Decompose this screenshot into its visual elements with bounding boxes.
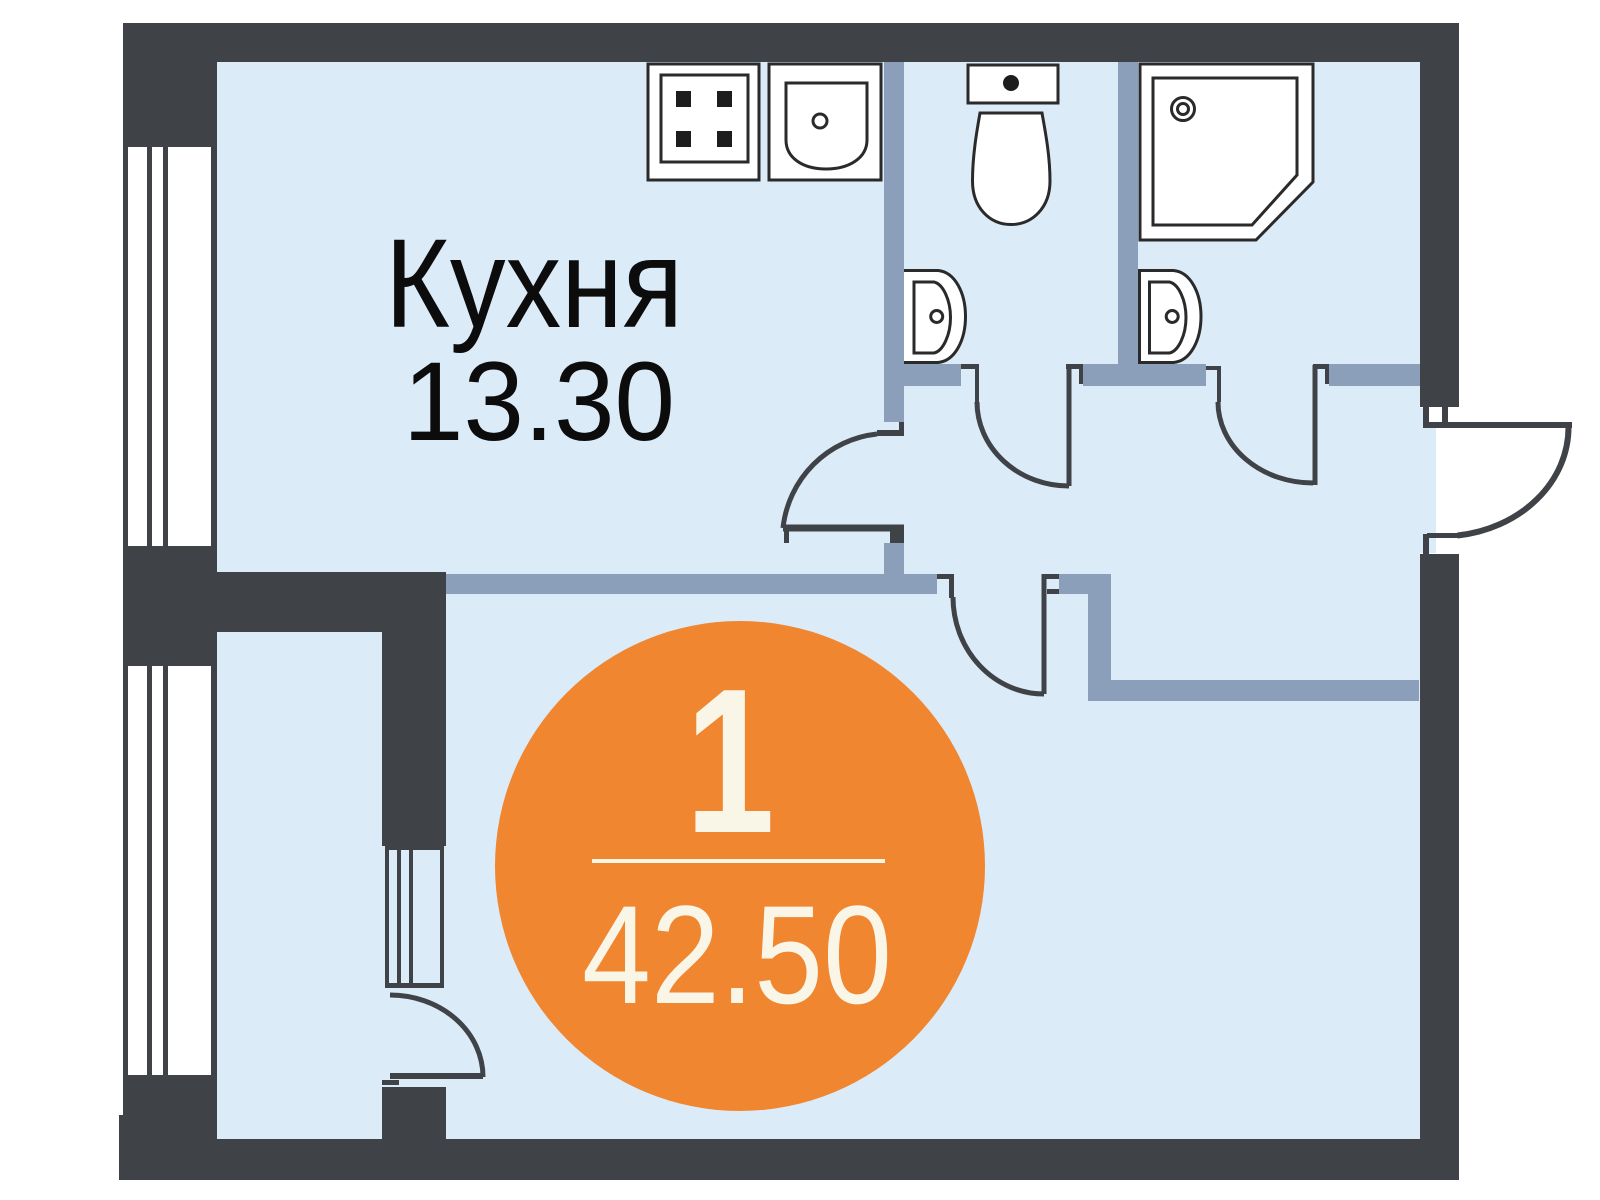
svg-text:Кухня: Кухня — [385, 213, 683, 354]
svg-text:1: 1 — [685, 647, 774, 877]
svg-text:13.30: 13.30 — [403, 339, 675, 464]
svg-text:42.50: 42.50 — [582, 876, 892, 1033]
